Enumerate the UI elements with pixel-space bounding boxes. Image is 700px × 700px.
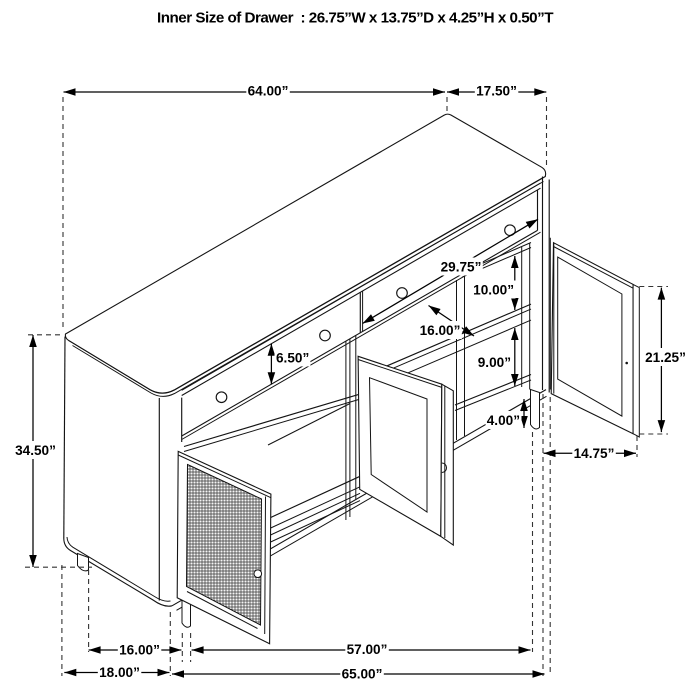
svg-text:64.00”: 64.00” bbox=[248, 84, 289, 99]
svg-text:57.00”: 57.00” bbox=[347, 642, 388, 657]
svg-text:Inner Size of Drawer : 26.75”: Inner Size of Drawer : 26.75”W x 13.75”D… bbox=[157, 10, 554, 27]
svg-text:18.00”: 18.00” bbox=[99, 665, 140, 680]
svg-text:21.25”: 21.25” bbox=[645, 350, 686, 365]
svg-text:34.50”: 34.50” bbox=[15, 443, 56, 458]
svg-text:14.75”: 14.75” bbox=[574, 446, 615, 461]
svg-text:6.50”: 6.50” bbox=[276, 350, 309, 365]
svg-text:29.75”: 29.75” bbox=[441, 259, 482, 274]
svg-text:4.00”: 4.00” bbox=[487, 413, 520, 428]
svg-text:16.00”: 16.00” bbox=[420, 323, 461, 338]
svg-text:16.00”: 16.00” bbox=[119, 642, 160, 657]
svg-text:65.00”: 65.00” bbox=[342, 667, 383, 682]
svg-text:9.00”: 9.00” bbox=[478, 355, 511, 370]
svg-text:10.00”: 10.00” bbox=[473, 282, 514, 297]
svg-text:17.50”: 17.50” bbox=[476, 84, 517, 99]
